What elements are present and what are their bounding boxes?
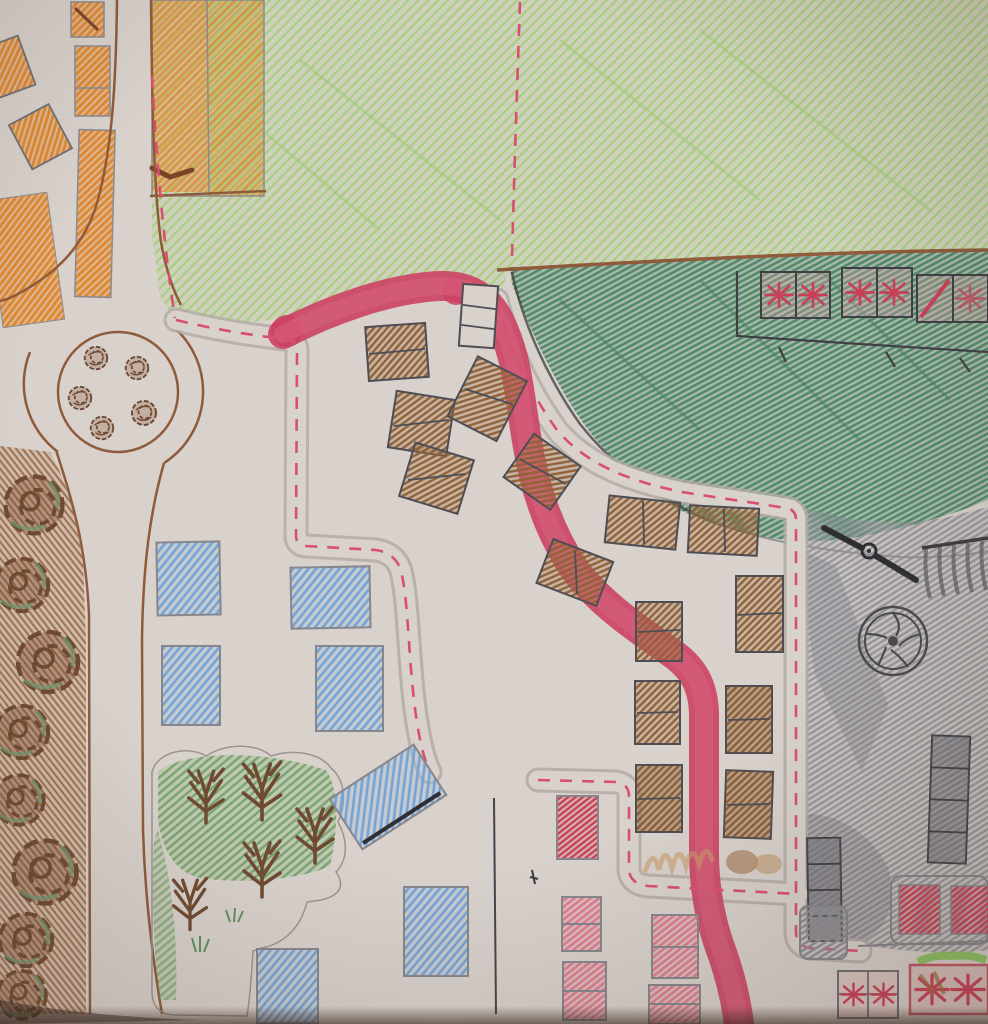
roundabout-shrub [85,347,108,370]
orange-building [75,46,110,116]
flag-plot [917,275,988,322]
gray-tower [928,735,970,863]
big-orange-building [150,0,266,196]
tree [14,841,77,904]
red-pair-compound [891,876,988,944]
flag-plot [761,272,830,318]
brown-house [726,686,772,753]
gray-building [800,906,847,959]
brown-house [736,576,783,652]
pink-house [652,915,698,978]
brown-house [605,495,681,549]
tree [0,971,46,1019]
photo-of-drawing: Hand-drawn town map in colored pencil on… [0,0,988,1024]
tree [0,559,48,612]
blue-building [156,541,220,615]
tree [0,706,48,759]
brown-house [636,765,682,832]
pink-house [649,985,700,1024]
starburst-building-green-roof [910,956,988,1015]
blue-building [404,887,468,976]
pink-house [563,962,606,1020]
flag-plot [842,268,912,317]
roundabout-shrub [69,387,92,410]
red-house [557,796,598,859]
hand-drawn-map [0,0,988,1024]
blue-building [257,949,318,1023]
flag-plots [761,268,988,322]
brown-house [636,602,682,661]
brown-house [688,505,759,556]
tree [0,914,52,967]
roundabout-shrub [91,417,114,440]
blue-building [162,646,220,725]
brown-house [365,323,429,381]
tree [6,477,63,534]
blue-building [290,566,370,628]
starburst-building [838,971,898,1018]
tree [18,632,78,692]
orange-building [75,130,115,298]
blue-building [316,646,383,731]
tree [0,775,44,825]
brown-house [724,770,773,839]
roundabout-shrub [132,401,156,425]
pink-house [562,897,601,951]
roundabout-shrub [126,357,149,380]
brown-house [635,681,680,744]
white-house [459,284,498,348]
tree-row [0,446,86,1019]
